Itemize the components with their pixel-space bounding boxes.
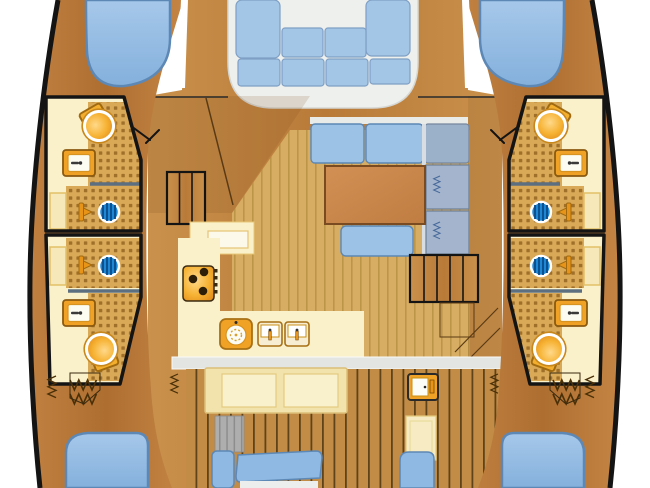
settee-sill	[310, 117, 468, 124]
port-forward-berth	[86, 0, 170, 86]
salon	[148, 96, 502, 369]
locker-door	[584, 247, 600, 285]
shower-drain	[531, 202, 551, 222]
washbasin	[555, 150, 587, 176]
starboard-forward-berth	[480, 0, 564, 86]
cockpit-cushion	[326, 59, 368, 86]
sliding-door-track	[172, 357, 502, 369]
sofa-cushion	[341, 226, 413, 256]
burner	[200, 268, 209, 277]
locker-door	[584, 193, 600, 229]
port-cockpit-bench	[212, 451, 322, 488]
shower-drain	[99, 256, 119, 276]
faucet	[235, 321, 238, 324]
washbasin	[63, 300, 95, 326]
forward-cockpit	[228, 0, 418, 108]
shower-drain	[99, 202, 119, 222]
stove	[183, 266, 218, 301]
cockpit-cushion	[236, 0, 280, 58]
fridge	[408, 374, 438, 400]
dining-table	[325, 166, 425, 224]
sink-bowl	[258, 322, 282, 346]
sofa-cushion	[366, 124, 423, 163]
sink-bowl	[285, 322, 309, 346]
port-stairs	[167, 172, 205, 224]
locker-door	[50, 247, 66, 285]
sofa-cushion	[311, 124, 364, 163]
cockpit-table	[205, 368, 347, 413]
chart-cabinet	[426, 165, 469, 209]
deck-plan-svg	[0, 0, 650, 488]
port-aft-berth	[66, 433, 148, 488]
chart-cabinet	[426, 211, 469, 254]
shower-drain	[531, 256, 551, 276]
cockpit-cushion	[370, 59, 410, 84]
washbasin	[555, 300, 587, 326]
round-sink	[220, 319, 252, 349]
starboard-forward-head	[507, 97, 604, 233]
starboard-aft-berth	[502, 433, 584, 488]
port-forward-head	[46, 97, 143, 233]
locker-door	[50, 193, 66, 229]
aft-cockpit	[171, 368, 502, 488]
cockpit-cushion	[366, 0, 410, 56]
boat-floor-plan	[0, 0, 650, 488]
bench-base	[240, 481, 318, 488]
cockpit-cushion	[325, 28, 366, 57]
burner	[189, 275, 198, 284]
burner	[199, 287, 208, 296]
table-leaf	[284, 374, 338, 407]
helm-steps	[215, 416, 244, 452]
table-leaf	[222, 374, 276, 407]
starboard-cockpit-bench	[400, 452, 434, 488]
sofa-cushion-shaded	[425, 124, 469, 163]
bridgedeck	[148, 0, 502, 488]
cockpit-cushion	[282, 28, 323, 57]
fridge-handle	[430, 380, 434, 393]
cockpit-cushion	[282, 59, 324, 86]
washbasin	[63, 150, 95, 176]
cockpit-cushion	[238, 59, 280, 86]
